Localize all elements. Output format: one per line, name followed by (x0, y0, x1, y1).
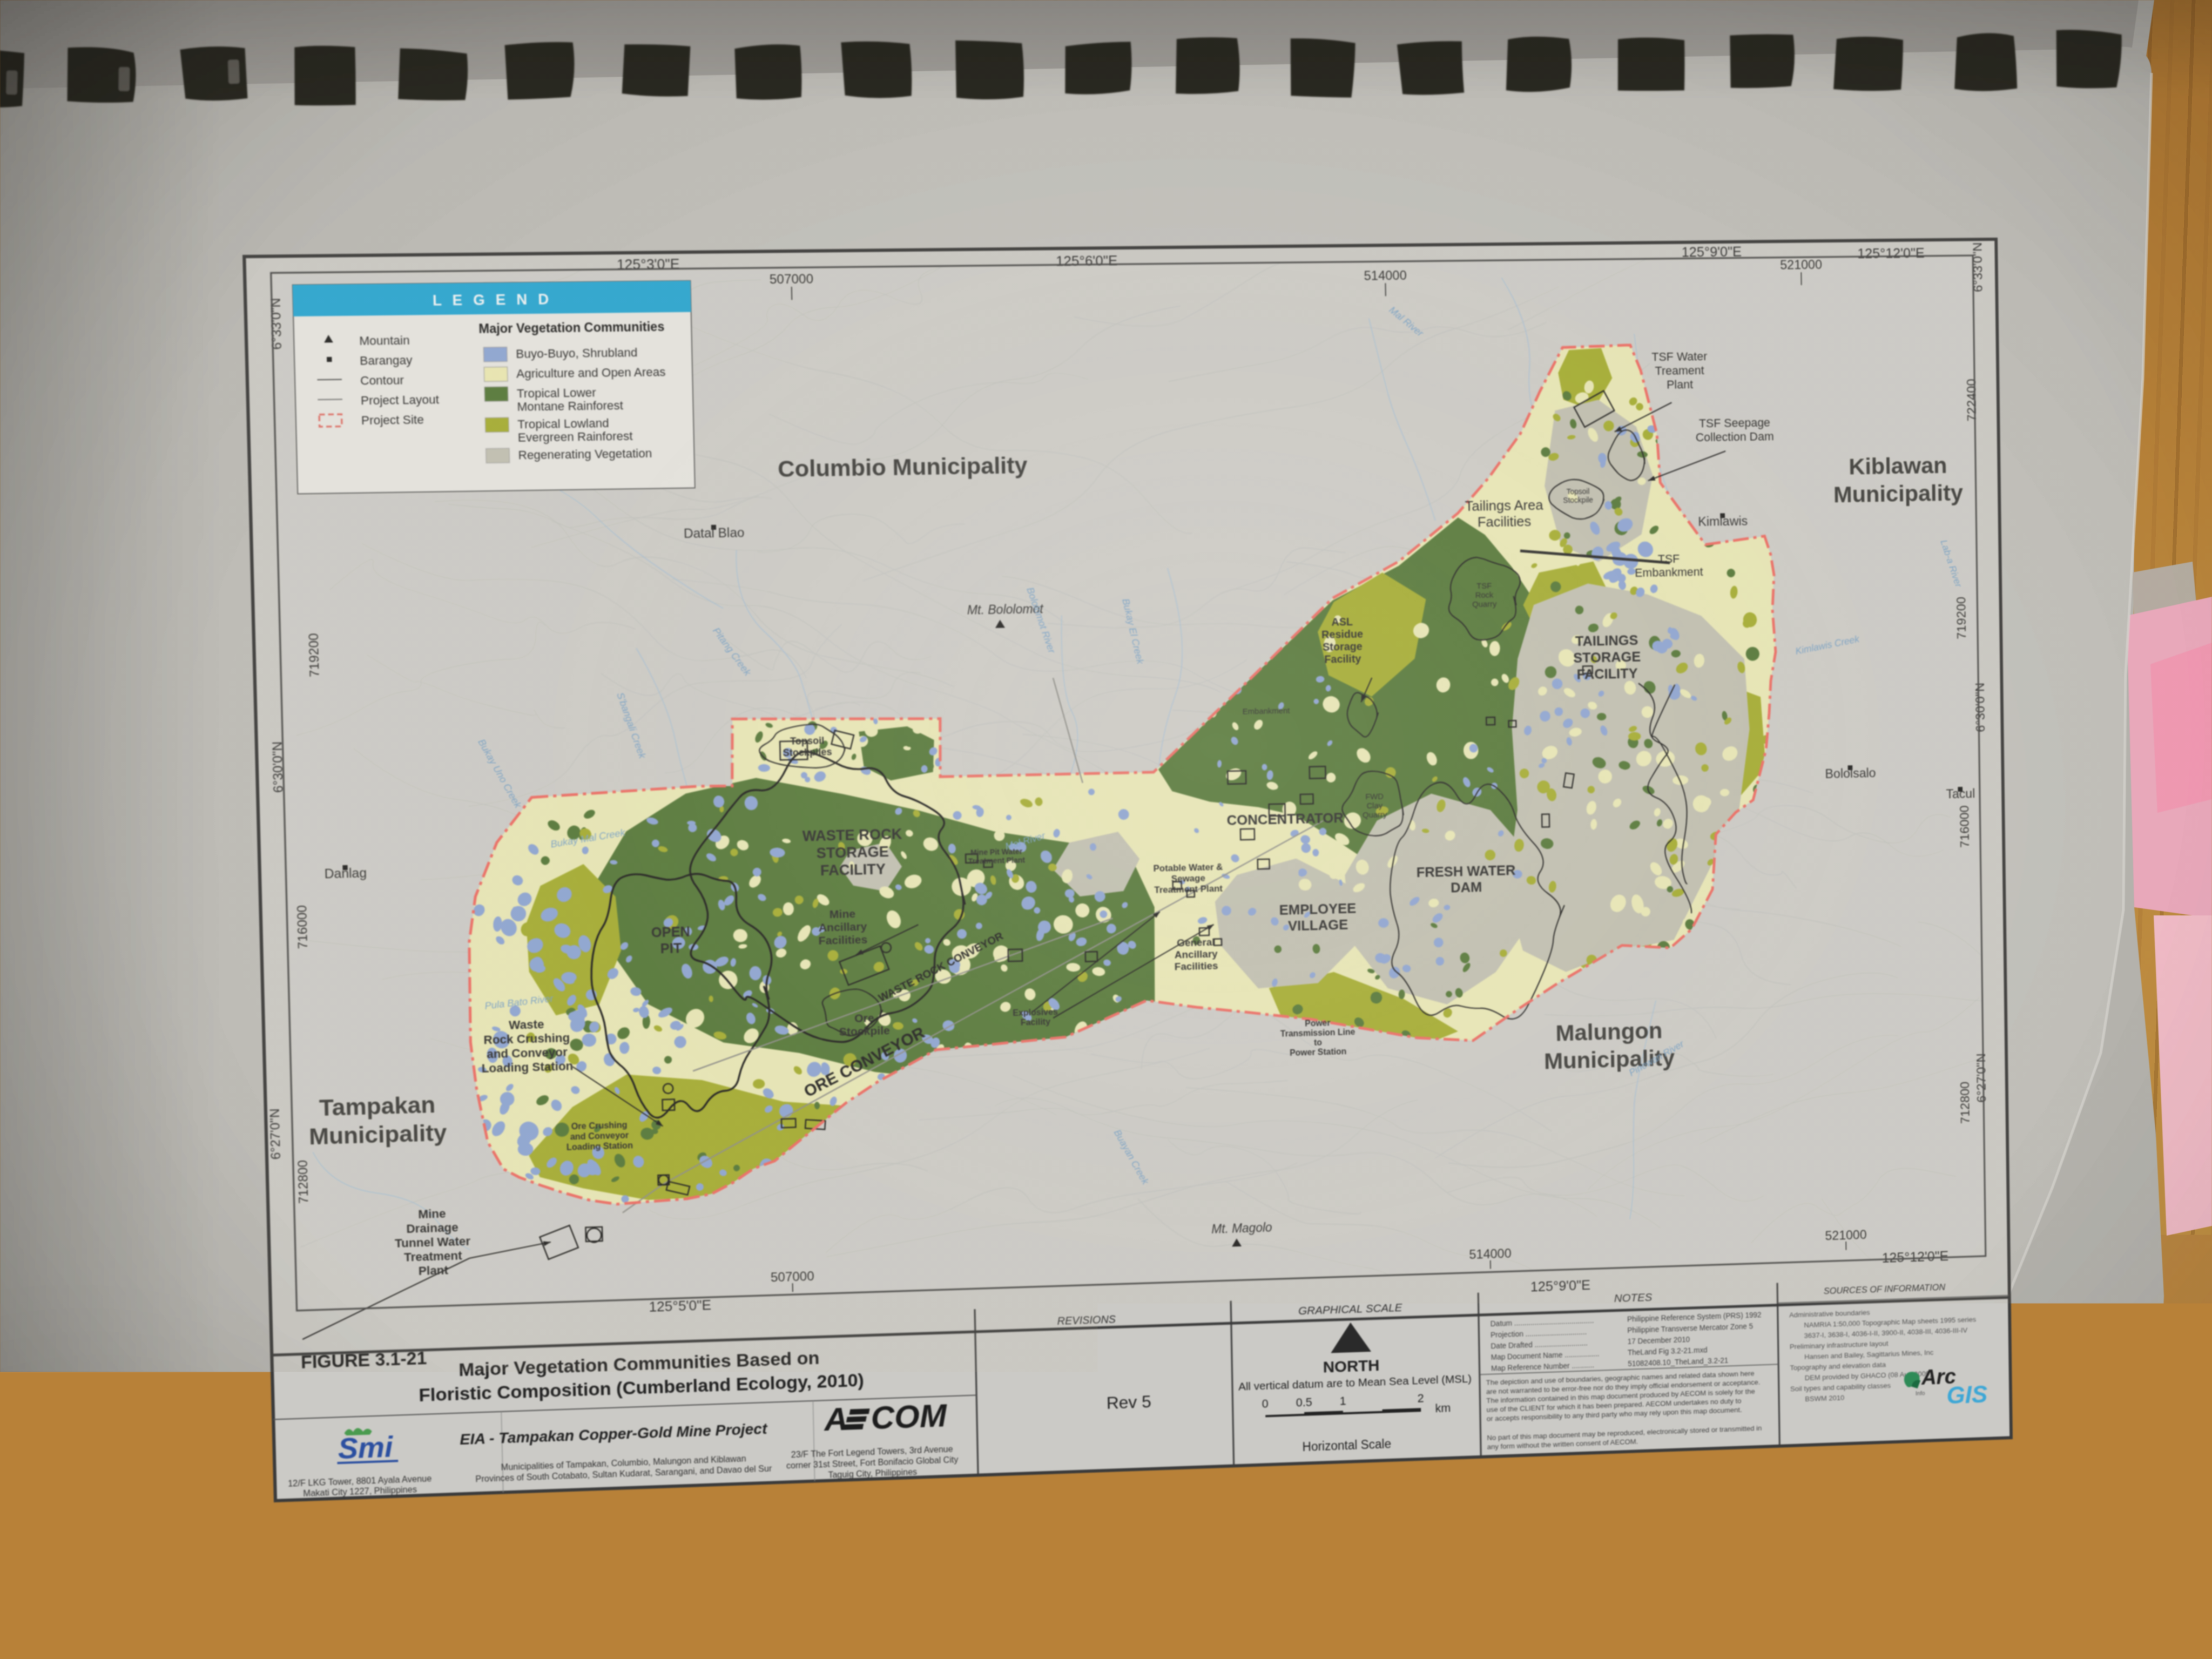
svg-text:Agriculture and Open Areas: Agriculture and Open Areas (516, 365, 666, 381)
svg-text:722400: 722400 (1965, 379, 1979, 421)
svg-text:6°30'0"N: 6°30'0"N (1973, 683, 1987, 732)
svg-text:Mt. Magolo: Mt. Magolo (1211, 1220, 1272, 1236)
svg-text:719200: 719200 (306, 633, 322, 677)
svg-text:Rev 5: Rev 5 (1107, 1392, 1152, 1413)
svg-text:Info: Info (1916, 1391, 1925, 1397)
svg-text:Project Layout: Project Layout (361, 393, 440, 408)
svg-text:514000: 514000 (1469, 1246, 1512, 1262)
svg-text:EMPLOYEEVILLAGE: EMPLOYEEVILLAGE (1279, 900, 1357, 934)
svg-text:BSWM 2010: BSWM 2010 (1805, 1393, 1844, 1403)
svg-text:125°12'0"E: 125°12'0"E (1857, 245, 1925, 261)
svg-text:712800: 712800 (295, 1160, 312, 1204)
svg-text:507000: 507000 (771, 1269, 814, 1285)
svg-text:716000: 716000 (294, 905, 311, 949)
svg-text:NORTH: NORTH (1323, 1356, 1379, 1376)
svg-text:Bololsalo: Bololsalo (1825, 766, 1876, 781)
svg-text:GeneralAncillaryFacilities: GeneralAncillaryFacilities (1174, 936, 1218, 973)
svg-text:COM: COM (871, 1398, 948, 1436)
svg-text:712800: 712800 (1958, 1081, 1972, 1124)
svg-text:TSF SeepageCollection Dam: TSF SeepageCollection Dam (1695, 415, 1774, 444)
svg-text:Contour: Contour (360, 373, 404, 388)
svg-text:Datal Blao: Datal Blao (684, 525, 745, 541)
svg-text:2: 2 (1418, 1391, 1424, 1405)
svg-text:Buyo-Buyo, Shrubland: Buyo-Buyo, Shrubland (516, 346, 638, 361)
svg-text:Tacul: Tacul (1946, 786, 1975, 801)
svg-text:TAILINGSSTORAGEFACILITY: TAILINGSSTORAGEFACILITY (1573, 632, 1641, 683)
svg-text:719200: 719200 (1954, 597, 1969, 639)
svg-text:6°27'0"N: 6°27'0"N (267, 1108, 284, 1159)
svg-text:TopsoilStockpile: TopsoilStockpile (1563, 488, 1593, 505)
svg-text:6°33'0"N: 6°33'0"N (268, 298, 284, 350)
svg-text:Tropical Lowland: Tropical Lowland (517, 416, 609, 431)
svg-text:125°9'0"E: 125°9'0"E (1530, 1277, 1591, 1294)
svg-text:521000: 521000 (1825, 1228, 1866, 1243)
svg-text:Danlag: Danlag (324, 866, 367, 881)
svg-text:Columbio Municipality: Columbio Municipality (778, 453, 1028, 482)
svg-text:Tropical Lower: Tropical Lower (517, 386, 597, 400)
svg-text:km: km (1435, 1401, 1451, 1415)
svg-text:Smi: Smi (338, 1430, 394, 1465)
svg-text:Barangay: Barangay (360, 353, 413, 368)
svg-text:Embankment: Embankment (1243, 706, 1290, 716)
svg-text:1: 1 (1339, 1394, 1346, 1407)
svg-text:507000: 507000 (770, 272, 814, 287)
svg-text:Kimlawis: Kimlawis (1698, 514, 1748, 529)
svg-text:Evergreen Rainforest: Evergreen Rainforest (518, 429, 633, 444)
svg-text:NOTES: NOTES (1614, 1291, 1653, 1305)
svg-text:0.5: 0.5 (1296, 1395, 1312, 1409)
svg-text:L E G E N D: L E G E N D (433, 291, 552, 309)
svg-text:Project Site: Project Site (361, 413, 424, 427)
svg-text:Mine Pit WaterTreatment Plant: Mine Pit WaterTreatment Plant (968, 848, 1025, 866)
svg-text:514000: 514000 (1364, 268, 1407, 284)
svg-text:Montane Rainforest: Montane Rainforest (517, 399, 624, 414)
svg-text:GIS: GIS (1946, 1381, 1988, 1409)
svg-text:6°27'0"N: 6°27'0"N (1974, 1053, 1989, 1103)
svg-text:CONCENTRATOR: CONCENTRATOR (1226, 810, 1344, 828)
svg-text:A: A (823, 1401, 848, 1438)
svg-text:521000: 521000 (1780, 258, 1822, 273)
svg-text:0: 0 (1262, 1397, 1269, 1410)
svg-text:716000: 716000 (1958, 805, 1972, 848)
svg-text:125°5'0"E: 125°5'0"E (649, 1297, 711, 1315)
svg-text:FIGURE 3.1-21: FIGURE 3.1-21 (301, 1348, 427, 1373)
svg-text:Regenerating Vegetation: Regenerating Vegetation (518, 446, 652, 462)
svg-text:125°6'0"E: 125°6'0"E (1056, 253, 1118, 269)
svg-text:Mountain: Mountain (359, 333, 410, 348)
svg-text:REVISIONS: REVISIONS (1057, 1313, 1116, 1327)
svg-text:Major Vegetation Communities: Major Vegetation Communities (478, 320, 665, 336)
svg-text:Ore Crushingand ConveyorLoadin: Ore Crushingand ConveyorLoading Station (566, 1120, 633, 1152)
